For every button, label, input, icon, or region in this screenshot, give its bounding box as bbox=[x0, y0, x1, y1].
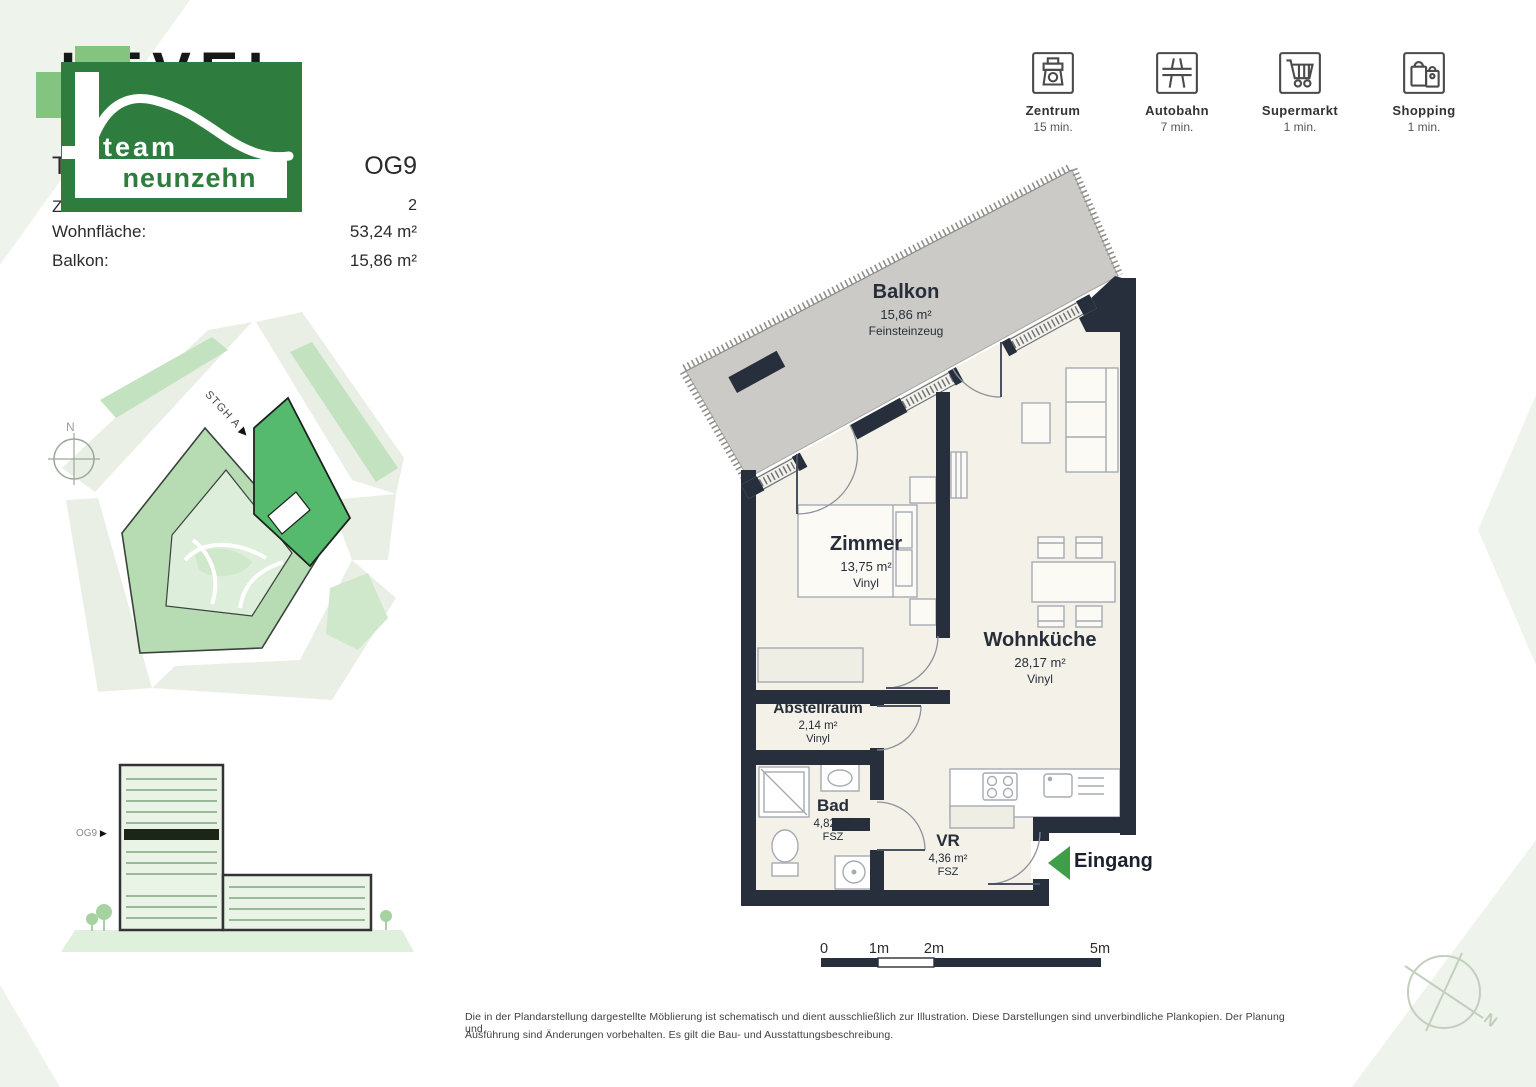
scale-label-0: 0 bbox=[820, 941, 828, 957]
lower-building bbox=[223, 875, 371, 930]
nightstand bbox=[910, 599, 936, 625]
side-table bbox=[1022, 403, 1050, 443]
room-name: Bad bbox=[814, 796, 853, 816]
ground bbox=[61, 930, 414, 952]
scale-label-2m: 2m bbox=[924, 941, 944, 957]
overpass-icon bbox=[1154, 50, 1200, 96]
fountain-icon bbox=[1030, 50, 1076, 96]
amenity-supermarkt: Supermarkt 1 min. bbox=[1240, 50, 1360, 134]
vr-cabinet bbox=[950, 806, 1014, 828]
room-floor: Feinsteinzeug bbox=[869, 324, 944, 338]
elevation-floor-arrow-icon: ▶ bbox=[100, 828, 107, 838]
shopping-cart-icon bbox=[1277, 50, 1323, 96]
amenity-shopping: Shopping 1 min. bbox=[1364, 50, 1484, 134]
room-area: 13,75 m² bbox=[830, 559, 902, 574]
team-neunzehn-logo: team neunzehn bbox=[61, 62, 302, 212]
room-area: 15,86 m² bbox=[869, 307, 944, 322]
room-area: 4,82 m² bbox=[814, 818, 853, 830]
amenity-autobahn: Autobahn 7 min. bbox=[1117, 50, 1237, 134]
room-label-zimmer: Zimmer 13,75 m² Vinyl bbox=[830, 533, 902, 590]
chair bbox=[1076, 606, 1102, 627]
room-name: Abstellraum bbox=[773, 700, 863, 718]
room-label-balkon: Balkon 15,86 m² Feinsteinzeug bbox=[869, 281, 944, 338]
room-floor: Vinyl bbox=[984, 672, 1097, 686]
chair bbox=[1038, 537, 1064, 558]
room-label-vr: VR 4,36 m² FSZ bbox=[929, 831, 968, 878]
disclaimer-line-2: Ausführung sind Änderungen vorbehalten. … bbox=[465, 1029, 1295, 1041]
room-name: Balkon bbox=[869, 281, 944, 304]
amenity-name: Zentrum bbox=[1026, 103, 1081, 118]
amenity-name: Autobahn bbox=[1145, 103, 1209, 118]
sideboard bbox=[758, 648, 863, 682]
scale-label-5m: 5m bbox=[1090, 941, 1110, 957]
washbasin bbox=[821, 764, 859, 791]
room-area: 28,17 m² bbox=[984, 655, 1097, 670]
building-elevation bbox=[61, 765, 414, 952]
chair bbox=[1038, 606, 1064, 627]
nightstand bbox=[910, 477, 936, 503]
amenity-zentrum: Zentrum 15 min. bbox=[993, 50, 1113, 134]
unit-row-label-balcony: Balkon: bbox=[52, 251, 109, 271]
scale-bar bbox=[821, 958, 1101, 967]
room-area: 2,14 m² bbox=[773, 720, 863, 732]
chair bbox=[1076, 537, 1102, 558]
room-name: VR bbox=[929, 831, 968, 851]
dining-table bbox=[1032, 562, 1115, 602]
room-label-bad: Bad 4,82 m² FSZ bbox=[814, 796, 853, 843]
floor-plan bbox=[683, 167, 1136, 906]
amenity-time: 7 min. bbox=[1161, 120, 1194, 134]
site-plan bbox=[48, 312, 404, 700]
amenity-time: 15 min. bbox=[1033, 120, 1072, 134]
site-compass-north-label: N bbox=[66, 420, 75, 434]
amenity-name: Shopping bbox=[1392, 103, 1455, 118]
shopping-bags-icon bbox=[1401, 50, 1447, 96]
amenity-name: Supermarkt bbox=[1262, 103, 1338, 118]
elevation-floor-text: OG9 bbox=[76, 828, 97, 839]
room-label-wohnkueche: Wohnküche 28,17 m² Vinyl bbox=[984, 629, 1097, 686]
room-floor: Vinyl bbox=[830, 576, 902, 590]
unit-row-label-living-area: Wohnfläche: bbox=[52, 222, 146, 242]
scale-label-1m: 1m bbox=[869, 941, 889, 957]
unit-row-value-balcony: 15,86 m² bbox=[250, 251, 417, 271]
room-label-abstellraum: Abstellraum 2,14 m² Vinyl bbox=[773, 700, 863, 745]
logo-accent bbox=[36, 72, 62, 118]
floorplan-sheet: LEVEL Top: OG9 Zimmer: 2 Wohnfläche: 53,… bbox=[0, 0, 1536, 1087]
room-name: Zimmer bbox=[830, 533, 902, 556]
room-floor: FSZ bbox=[929, 866, 968, 878]
room-name: Wohnküche bbox=[984, 629, 1097, 652]
sofa bbox=[1066, 368, 1118, 472]
amenity-time: 1 min. bbox=[1408, 120, 1441, 134]
amenity-time: 1 min. bbox=[1284, 120, 1317, 134]
logo-line2: neunzehn bbox=[92, 159, 287, 198]
unit-row-value-living-area: 53,24 m² bbox=[250, 222, 417, 242]
room-floor: FSZ bbox=[814, 831, 853, 843]
logo-line2-box: neunzehn bbox=[92, 159, 287, 198]
elevation-floor-label: OG9 ▶ bbox=[76, 828, 107, 839]
entrance-label: Eingang bbox=[1074, 850, 1153, 873]
radiator bbox=[951, 452, 967, 498]
room-area: 4,36 m² bbox=[929, 853, 968, 865]
entrance-arrow-icon bbox=[1048, 846, 1070, 880]
room-floor: Vinyl bbox=[773, 733, 863, 745]
toilet bbox=[772, 830, 798, 862]
highlighted-floor-og9 bbox=[124, 829, 219, 840]
